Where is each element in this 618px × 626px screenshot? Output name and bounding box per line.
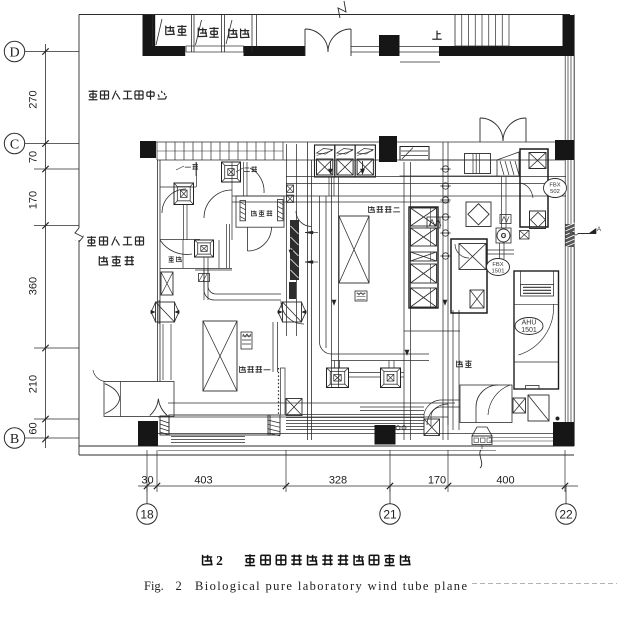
svg-text:403: 403 bbox=[194, 475, 212, 487]
svg-text:170: 170 bbox=[428, 475, 446, 487]
svg-text:AHU: AHU bbox=[522, 320, 537, 327]
svg-text:B: B bbox=[10, 432, 19, 447]
svg-text:Fig.: Fig. bbox=[144, 579, 164, 593]
svg-text:FBX: FBX bbox=[492, 262, 503, 268]
svg-text:C: C bbox=[10, 138, 19, 153]
svg-text:328: 328 bbox=[329, 475, 347, 487]
svg-text:210: 210 bbox=[28, 375, 40, 393]
svg-text:1501: 1501 bbox=[521, 327, 537, 334]
svg-text:30: 30 bbox=[141, 475, 153, 487]
svg-text:G: G bbox=[502, 234, 506, 240]
svg-text:22: 22 bbox=[559, 507, 573, 521]
svg-text:400: 400 bbox=[496, 475, 514, 487]
svg-text:18: 18 bbox=[140, 507, 154, 521]
svg-text:60: 60 bbox=[28, 422, 40, 434]
svg-text:Biological pure laboratory win: Biological pure laboratory wind tube pla… bbox=[195, 579, 467, 593]
svg-text:170: 170 bbox=[28, 191, 40, 209]
svg-text:21: 21 bbox=[383, 507, 397, 521]
svg-text:70: 70 bbox=[28, 151, 40, 163]
svg-text:270: 270 bbox=[28, 90, 40, 108]
svg-text:360: 360 bbox=[28, 277, 40, 295]
svg-text:A: A bbox=[597, 227, 601, 233]
svg-text:D: D bbox=[9, 46, 19, 61]
svg-text:2: 2 bbox=[176, 579, 182, 593]
svg-text:2: 2 bbox=[216, 553, 223, 568]
svg-text:502: 502 bbox=[550, 189, 560, 195]
svg-text:1501: 1501 bbox=[492, 268, 505, 274]
svg-text:FBX: FBX bbox=[549, 183, 560, 189]
